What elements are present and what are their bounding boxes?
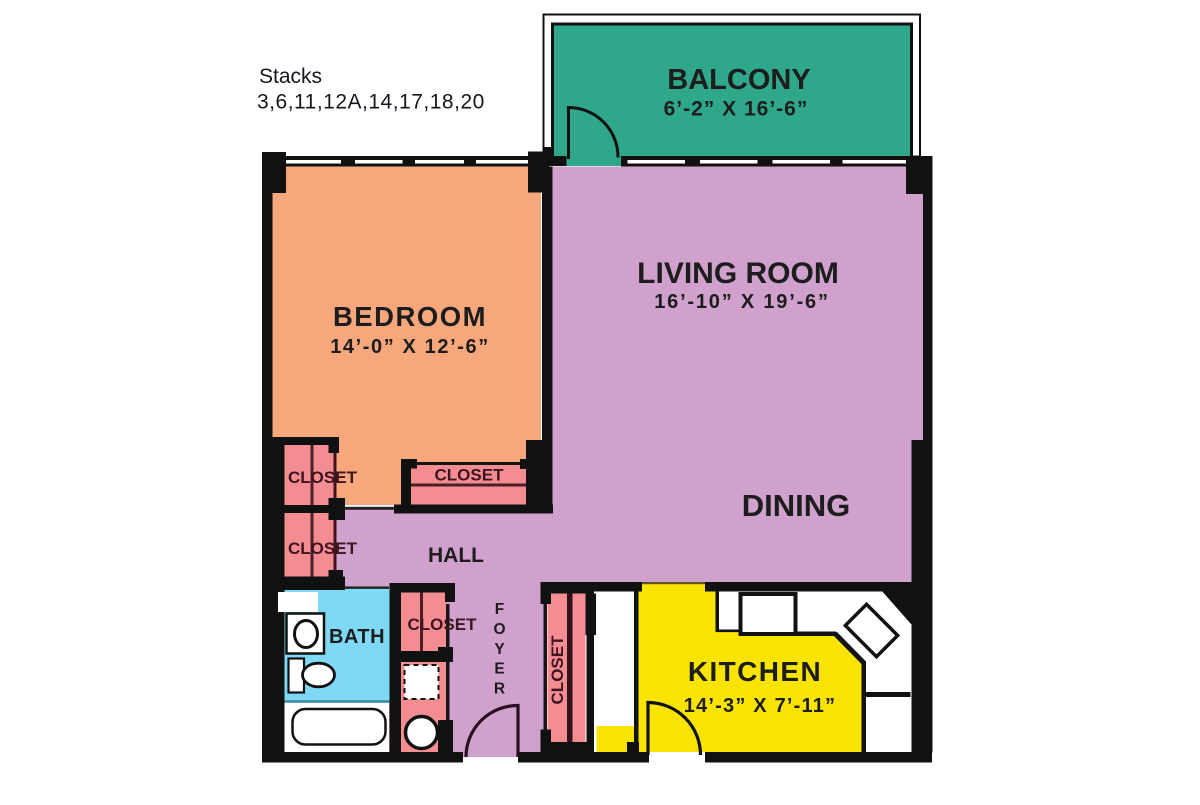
svg-text:KITCHEN: KITCHEN	[688, 656, 822, 687]
svg-text:BALCONY: BALCONY	[667, 64, 810, 96]
svg-text:BEDROOM: BEDROOM	[333, 301, 487, 332]
svg-text:O: O	[493, 621, 505, 638]
svg-text:16’-10” X 19’-6”: 16’-10” X 19’-6”	[654, 291, 830, 313]
svg-text:CLOSET: CLOSET	[408, 615, 478, 634]
svg-text:6’-2” X 16’-6”: 6’-2” X 16’-6”	[664, 98, 809, 121]
svg-text:R: R	[494, 681, 505, 698]
svg-text:CLOSET: CLOSET	[288, 539, 358, 558]
svg-text:CLOSET: CLOSET	[548, 635, 567, 705]
svg-text:BATH: BATH	[329, 626, 385, 648]
svg-text:DINING: DINING	[742, 488, 851, 523]
svg-text:LIVING ROOM: LIVING ROOM	[637, 257, 839, 290]
svg-text:HALL: HALL	[428, 544, 484, 567]
svg-text:14’-0” X 12’-6”: 14’-0” X 12’-6”	[330, 336, 490, 358]
svg-text:CLOSET: CLOSET	[435, 466, 505, 485]
svg-text:Y: Y	[494, 641, 505, 658]
svg-text:3,6,11,12A,14,17,18,20: 3,6,11,12A,14,17,18,20	[257, 91, 485, 114]
svg-text:14’-3” X 7’-11”: 14’-3” X 7’-11”	[684, 695, 837, 717]
svg-text:F: F	[495, 601, 504, 618]
svg-text:E: E	[494, 660, 504, 677]
svg-text:CLOSET: CLOSET	[288, 468, 358, 487]
svg-text:Stacks: Stacks	[259, 65, 322, 88]
